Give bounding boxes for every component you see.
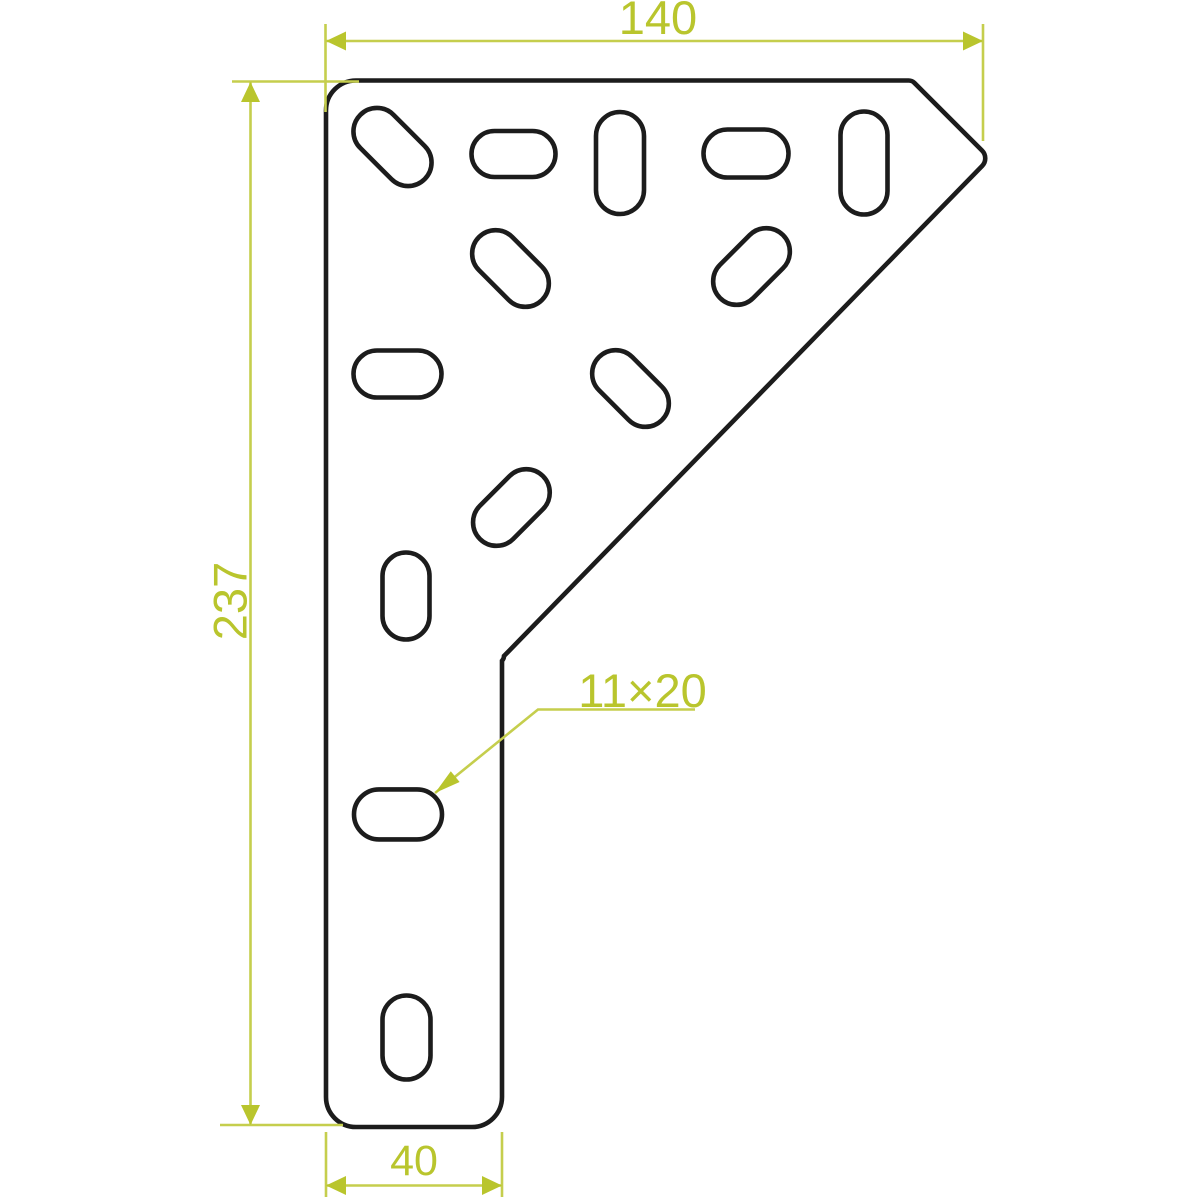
svg-text:140: 140 bbox=[619, 0, 697, 44]
svg-text:40: 40 bbox=[390, 1137, 438, 1185]
svg-text:11×20: 11×20 bbox=[578, 664, 707, 717]
svg-text:237: 237 bbox=[204, 562, 257, 640]
